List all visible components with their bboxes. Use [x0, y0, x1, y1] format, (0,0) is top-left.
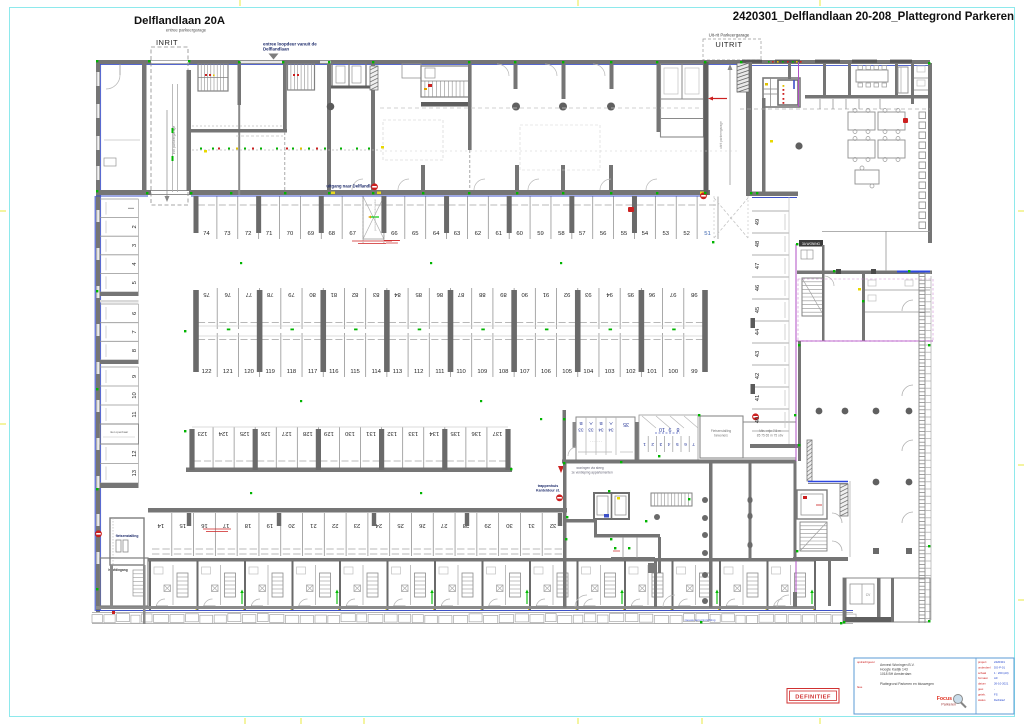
- svg-text:98: 98: [690, 291, 697, 297]
- svg-text:15: 15: [179, 522, 186, 528]
- svg-text:83: 83: [372, 291, 379, 297]
- svg-text:23: 23: [353, 522, 360, 528]
- svg-text:128: 128: [302, 430, 313, 436]
- svg-text:53: 53: [663, 231, 670, 237]
- svg-text:115: 115: [350, 369, 360, 375]
- svg-text:13: 13: [132, 469, 138, 476]
- svg-text:75: 75: [203, 291, 210, 297]
- svg-text:Fietsenstalling: Fietsenstalling: [711, 429, 732, 433]
- svg-text:135: 135: [450, 430, 461, 436]
- svg-text:94: 94: [606, 291, 613, 297]
- svg-text:25: 25: [397, 522, 404, 528]
- svg-text:10: 10: [132, 392, 138, 399]
- svg-text:67: 67: [349, 231, 356, 237]
- svg-text:86: 86: [436, 291, 443, 297]
- svg-text:2: 2: [651, 441, 654, 447]
- svg-text:4: 4: [132, 262, 138, 266]
- svg-text:34: 34: [608, 427, 614, 433]
- svg-text:4: 4: [667, 441, 670, 447]
- svg-text:61: 61: [495, 231, 502, 237]
- svg-text:10: 10: [659, 426, 665, 432]
- svg-text:9: 9: [669, 426, 672, 432]
- svg-text:26: 26: [418, 522, 425, 528]
- svg-text:118: 118: [287, 369, 297, 375]
- svg-text:117: 117: [308, 369, 317, 375]
- svg-text:125: 125: [239, 430, 250, 436]
- svg-text:114: 114: [372, 369, 382, 375]
- svg-text:44: 44: [755, 328, 761, 335]
- svg-text:82: 82: [352, 291, 359, 297]
- svg-text:3: 3: [132, 243, 138, 247]
- svg-text:103: 103: [605, 369, 616, 375]
- svg-text:A0: A0: [994, 676, 998, 680]
- svg-text:DO-P-01: DO-P-01: [994, 666, 1005, 670]
- svg-text:88: 88: [478, 291, 485, 297]
- svg-text:formaat: formaat: [978, 676, 988, 680]
- svg-text:52: 52: [683, 231, 690, 237]
- svg-text:111: 111: [435, 369, 444, 375]
- svg-text:102: 102: [626, 369, 636, 375]
- svg-text:Amvest Woningen B.V.: Amvest Woningen B.V.: [880, 663, 915, 667]
- svg-text:-: -: [994, 687, 995, 691]
- svg-text:100: 100: [668, 369, 679, 375]
- svg-text:72: 72: [245, 231, 252, 237]
- svg-text:107: 107: [520, 369, 530, 375]
- svg-text:bewoners: bewoners: [714, 434, 728, 438]
- svg-text:104: 104: [583, 369, 594, 375]
- svg-text:131: 131: [366, 430, 376, 436]
- svg-text:UITRIT: UITRIT: [715, 40, 742, 49]
- svg-text:Definitief: Definitief: [994, 698, 1005, 702]
- svg-text:51: 51: [704, 231, 711, 237]
- svg-text:27: 27: [441, 522, 448, 528]
- svg-text:62: 62: [475, 231, 482, 237]
- svg-text:48: 48: [755, 240, 761, 247]
- svg-text:33: 33: [588, 427, 594, 433]
- svg-text:101: 101: [647, 369, 657, 375]
- svg-text:FS: FS: [994, 693, 998, 697]
- svg-text:120: 120: [244, 369, 255, 375]
- svg-text:119: 119: [266, 369, 275, 375]
- svg-text:30: 30: [506, 522, 513, 528]
- svg-text:2: 2: [132, 225, 138, 228]
- svg-text:108: 108: [499, 369, 510, 375]
- svg-text:12: 12: [132, 450, 138, 457]
- svg-text:Delflandlaan 20A: Delflandlaan 20A: [134, 15, 225, 27]
- svg-text:35: 35: [623, 421, 629, 427]
- svg-text:8: 8: [677, 426, 680, 432]
- svg-text:onderdeel: onderdeel: [978, 666, 991, 670]
- svg-text:69: 69: [308, 231, 315, 237]
- svg-text:85: 85: [415, 291, 422, 297]
- svg-text:34: 34: [598, 427, 604, 433]
- svg-text:entree parkeergarage: entree parkeergarage: [166, 28, 207, 33]
- svg-text:71: 71: [266, 231, 273, 237]
- svg-text:95: 95: [627, 291, 634, 297]
- svg-text:Plattegrond Parkeren en bluswe: Plattegrond Parkeren en bluswegen: [880, 682, 934, 686]
- svg-text:17: 17: [223, 522, 230, 528]
- svg-text:116: 116: [329, 369, 339, 375]
- svg-text:46: 46: [755, 284, 761, 291]
- svg-text:31: 31: [528, 522, 535, 528]
- svg-text:B: B: [599, 420, 602, 426]
- svg-text:40: 40: [755, 416, 761, 423]
- svg-text:76: 76: [224, 291, 231, 297]
- svg-text:21: 21: [310, 522, 317, 528]
- svg-text:122: 122: [202, 369, 212, 375]
- svg-text:78: 78: [266, 291, 273, 297]
- svg-text:56: 56: [600, 231, 607, 237]
- svg-text:A: A: [589, 420, 593, 426]
- svg-text:43: 43: [755, 350, 761, 357]
- svg-text:5: 5: [676, 441, 679, 447]
- svg-text:41: 41: [755, 395, 761, 402]
- svg-text:Hoogte Kadijk 143: Hoogte Kadijk 143: [880, 668, 908, 672]
- svg-text:29: 29: [484, 522, 491, 528]
- svg-text:datum: datum: [978, 682, 986, 686]
- svg-text:B: B: [579, 420, 582, 426]
- svg-text:74: 74: [203, 231, 210, 237]
- svg-text:113: 113: [393, 369, 403, 375]
- svg-text:68: 68: [328, 231, 335, 237]
- svg-text:- - - - - - -: - - - - - - -: [590, 439, 602, 443]
- svg-text:8: 8: [132, 348, 138, 352]
- svg-text:2420301: 2420301: [994, 660, 1005, 664]
- svg-text:136: 136: [471, 430, 482, 436]
- svg-text:121: 121: [223, 369, 233, 375]
- svg-text:Focus: Focus: [937, 696, 952, 702]
- svg-text:1e verdieping appartementen: 1e verdieping appartementen: [571, 471, 613, 475]
- svg-text:60: 60: [516, 231, 523, 237]
- svg-text:124: 124: [218, 430, 229, 436]
- svg-text:14: 14: [157, 522, 164, 528]
- svg-text:55: 55: [621, 231, 628, 237]
- svg-text:85 75 65 m 75 obv: 85 75 65 m 75 obv: [757, 434, 784, 438]
- svg-text:11: 11: [132, 411, 138, 417]
- svg-text:fietsenstalling: fietsenstalling: [116, 534, 139, 538]
- svg-text:58: 58: [558, 231, 565, 237]
- svg-text:93: 93: [584, 291, 591, 297]
- svg-text:niet openbaar: niet openbaar: [110, 430, 128, 434]
- svg-text:1: 1: [643, 441, 646, 447]
- svg-text:127: 127: [282, 430, 292, 436]
- svg-text:49: 49: [755, 219, 761, 226]
- svg-text:59: 59: [537, 231, 544, 237]
- svg-text:opdrachtgever: opdrachtgever: [857, 660, 875, 664]
- svg-text:112: 112: [414, 369, 423, 375]
- svg-text:7: 7: [132, 330, 138, 333]
- svg-text:3A WONING: 3A WONING: [802, 242, 821, 246]
- svg-text:96: 96: [648, 291, 655, 297]
- svg-text:73: 73: [224, 231, 231, 237]
- svg-text:109: 109: [477, 369, 487, 375]
- svg-text:64: 64: [433, 231, 440, 237]
- svg-text:gereserveerd mindervaliden: gereserveerd mindervaliden: [373, 198, 377, 231]
- svg-text:80: 80: [309, 291, 316, 297]
- svg-text:137: 137: [493, 430, 503, 436]
- svg-text:79: 79: [288, 291, 295, 297]
- svg-text:16: 16: [200, 522, 207, 528]
- svg-text:91: 91: [543, 291, 550, 297]
- svg-text:134: 134: [429, 430, 440, 436]
- svg-text:87: 87: [458, 291, 465, 297]
- svg-text:89: 89: [500, 291, 507, 297]
- svg-text:126: 126: [260, 430, 271, 436]
- svg-text:Uit-rit Parkeergarage: Uit-rit Parkeergarage: [709, 33, 750, 38]
- svg-text:20: 20: [288, 522, 295, 528]
- svg-text:7: 7: [692, 441, 695, 447]
- svg-text:uitgang naar Delflandlaan: uitgang naar Delflandlaan: [326, 184, 378, 189]
- svg-text:18: 18: [244, 522, 251, 528]
- svg-text:Delflandlaan: Delflandlaan: [263, 47, 289, 52]
- svg-text:status: status: [978, 698, 986, 702]
- svg-text:110: 110: [456, 369, 466, 375]
- svg-text:19: 19: [267, 522, 274, 528]
- svg-text:123: 123: [197, 430, 208, 436]
- svg-text:9: 9: [132, 375, 138, 378]
- svg-text:schaal: schaal: [978, 671, 986, 675]
- svg-text:132: 132: [387, 430, 397, 436]
- svg-text:57: 57: [579, 231, 586, 237]
- svg-text:fase: fase: [857, 685, 863, 689]
- svg-text:DEFINITIEF: DEFINITIEF: [795, 695, 831, 701]
- svg-text:81: 81: [331, 291, 338, 297]
- svg-text:32: 32: [550, 522, 557, 528]
- svg-text:3: 3: [659, 441, 662, 447]
- svg-text:84: 84: [393, 291, 400, 297]
- svg-text:45: 45: [755, 306, 761, 313]
- svg-text:54: 54: [642, 231, 649, 237]
- svg-text:2420301_Delflandlaan 20-208_Pl: 2420301_Delflandlaan 20-208_Plattegrond …: [733, 11, 1014, 23]
- svg-text:1 : 200 (A0): 1 : 200 (A0): [994, 671, 1009, 675]
- svg-text:42: 42: [755, 373, 761, 380]
- svg-text:Kanteldeur st.: Kanteldeur st.: [536, 489, 560, 493]
- svg-text:1018 BH Amsterdam: 1018 BH Amsterdam: [880, 672, 911, 676]
- svg-text:woningen via steeg: woningen via steeg: [576, 466, 604, 470]
- svg-text:97: 97: [670, 291, 677, 297]
- svg-text:6: 6: [132, 311, 138, 315]
- svg-text:105: 105: [562, 369, 573, 375]
- svg-text:CV: CV: [866, 593, 871, 597]
- svg-text:77: 77: [246, 291, 253, 297]
- svg-text:project: project: [978, 660, 987, 664]
- svg-text:90: 90: [521, 291, 528, 297]
- svg-text:129: 129: [324, 430, 334, 436]
- svg-text:Parkeren: Parkeren: [941, 703, 956, 707]
- svg-text:5: 5: [132, 280, 138, 284]
- svg-text:106: 106: [541, 369, 552, 375]
- svg-text:6: 6: [684, 441, 687, 447]
- svg-text:66: 66: [391, 231, 398, 237]
- svg-text:26-10-2021: 26-10-2021: [994, 682, 1009, 686]
- svg-text:INRIT: INRIT: [156, 38, 178, 47]
- svg-text:92: 92: [564, 291, 571, 297]
- svg-text:trappenhuis: trappenhuis: [538, 484, 559, 488]
- svg-text:63: 63: [454, 231, 461, 237]
- svg-text:99: 99: [691, 369, 698, 375]
- svg-text:22: 22: [332, 522, 339, 528]
- svg-text:uitrit parkeergarage: uitrit parkeergarage: [719, 121, 723, 149]
- svg-text:47: 47: [755, 263, 761, 270]
- svg-text:70: 70: [287, 231, 294, 237]
- svg-text:33: 33: [578, 427, 584, 433]
- svg-text:A: A: [609, 420, 613, 426]
- svg-text:130: 130: [344, 430, 355, 436]
- svg-text:133: 133: [408, 430, 419, 436]
- svg-text:getek.: getek.: [978, 693, 986, 697]
- svg-text:65: 65: [412, 231, 419, 237]
- svg-text:gew.: gew.: [978, 687, 984, 691]
